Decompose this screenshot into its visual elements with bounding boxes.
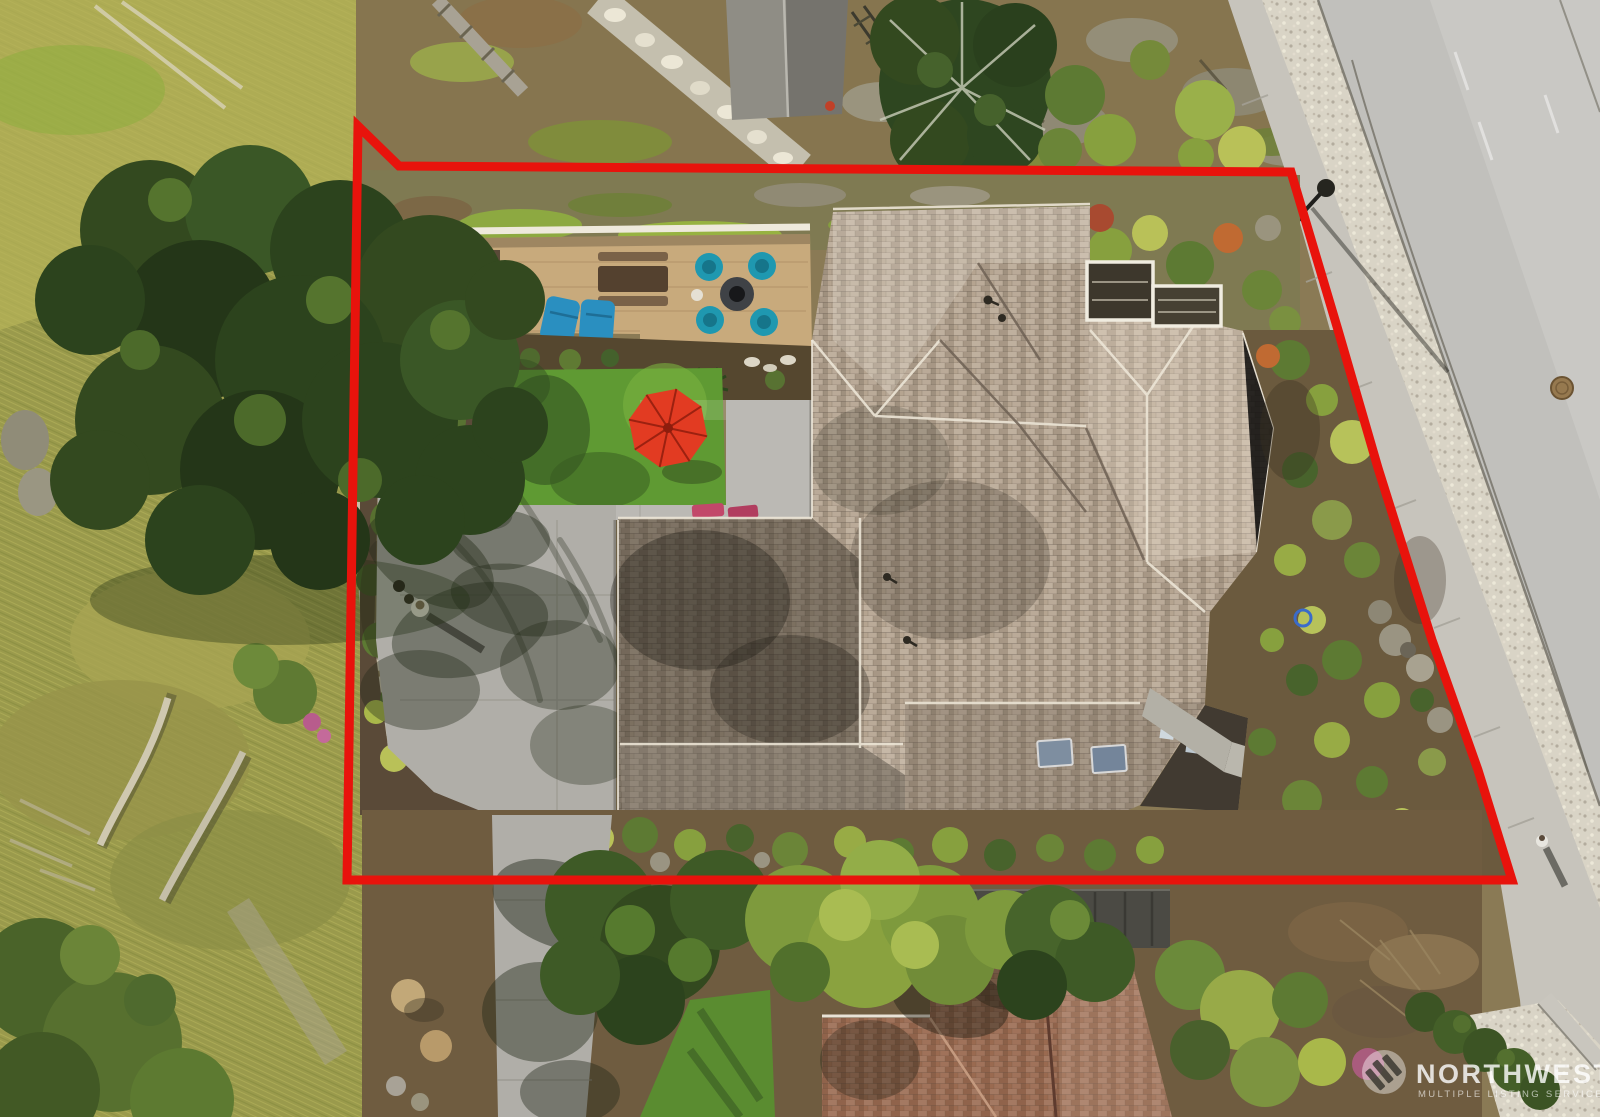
lamp-head: [1317, 179, 1335, 197]
bottom-strip: [362, 810, 1600, 1117]
magenta-cushion: [692, 503, 725, 518]
white-rocks: [744, 357, 760, 367]
rock-outcrop: [1, 410, 49, 470]
watermark-logo-icon: [1362, 1050, 1406, 1094]
stone: [386, 1076, 406, 1096]
skylight: [1037, 739, 1073, 767]
neighbor-shed-roof: [726, 0, 848, 120]
orange-shrub: [1213, 223, 1243, 253]
watermark-title: NORTHWEST: [1416, 1059, 1600, 1089]
pine-tree: [870, 0, 1057, 180]
red-pot: [825, 101, 835, 111]
side-table: [691, 289, 703, 301]
skylight: [1091, 745, 1127, 773]
upper-hillside: [356, 0, 1336, 185]
orange-shrub: [1256, 344, 1280, 368]
outdoor-dining-set: [598, 252, 668, 306]
aerial-photo-canvas: NORTHWEST MULTIPLE LISTING SERVICE: [0, 0, 1600, 1117]
aerial-photo: NORTHWEST MULTIPLE LISTING SERVICE: [0, 0, 1600, 1117]
watermark-subtitle: MULTIPLE LISTING SERVICE: [1418, 1089, 1600, 1100]
manhole-cover: [1551, 377, 1573, 399]
pink-flower-bush: [303, 713, 321, 731]
pergola-beam: [466, 227, 810, 231]
